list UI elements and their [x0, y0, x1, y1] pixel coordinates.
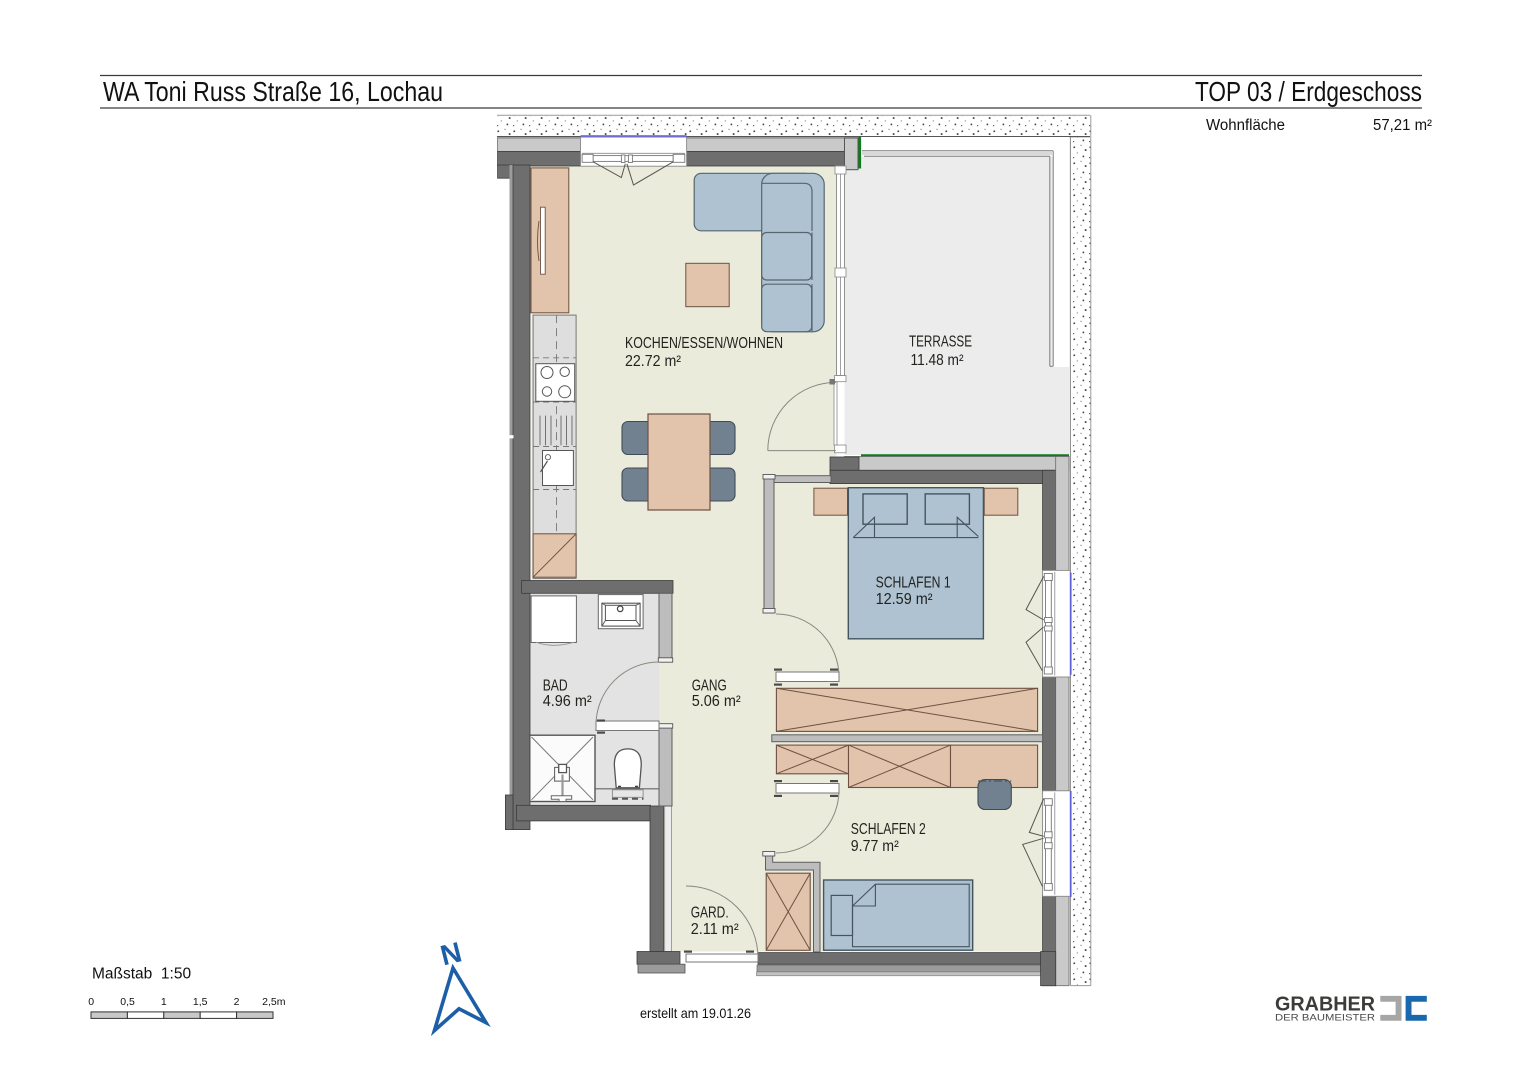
- svg-text:N: N: [437, 936, 465, 972]
- svg-text:1,5: 1,5: [193, 996, 208, 1008]
- svg-text:11.48 m²: 11.48 m²: [911, 352, 964, 369]
- svg-text:0: 0: [88, 996, 94, 1008]
- svg-text:KOCHEN/ESSEN/WOHNEN: KOCHEN/ESSEN/WOHNEN: [625, 335, 783, 352]
- svg-text:1: 1: [161, 996, 167, 1008]
- svg-text:22.72 m²: 22.72 m²: [625, 353, 681, 370]
- svg-text:5.06 m²: 5.06 m²: [692, 693, 741, 710]
- svg-text:Maßstab 1:50: Maßstab 1:50: [92, 966, 191, 983]
- svg-text:57,21 m²: 57,21 m²: [1373, 117, 1432, 134]
- svg-text:2: 2: [234, 996, 240, 1008]
- svg-text:erstellt am 19.01.26: erstellt am 19.01.26: [640, 1005, 751, 1021]
- svg-text:BAD: BAD: [543, 678, 568, 695]
- svg-text:SCHLAFEN 2: SCHLAFEN 2: [851, 821, 926, 838]
- svg-text:GARD.: GARD.: [691, 904, 729, 921]
- svg-text:SCHLAFEN 1: SCHLAFEN 1: [876, 575, 951, 592]
- svg-text:WA Toni Russ Straße 16, Lochau: WA Toni Russ Straße 16, Lochau: [103, 76, 443, 107]
- svg-text:Wohnfläche: Wohnfläche: [1206, 117, 1285, 134]
- svg-text:0,5: 0,5: [120, 996, 135, 1008]
- svg-text:DER BAUMEISTER: DER BAUMEISTER: [1275, 1013, 1376, 1023]
- svg-text:4.96 m²: 4.96 m²: [543, 693, 592, 710]
- svg-text:2.11 m²: 2.11 m²: [691, 921, 739, 938]
- svg-text:12.59 m²: 12.59 m²: [876, 591, 933, 608]
- svg-text:TERRASSE: TERRASSE: [909, 333, 972, 350]
- svg-text:GANG: GANG: [692, 678, 727, 695]
- svg-text:TOP 03 / Erdgeschoss: TOP 03 / Erdgeschoss: [1195, 76, 1422, 107]
- svg-text:2,5m: 2,5m: [262, 996, 286, 1008]
- svg-text:9.77 m²: 9.77 m²: [851, 838, 899, 855]
